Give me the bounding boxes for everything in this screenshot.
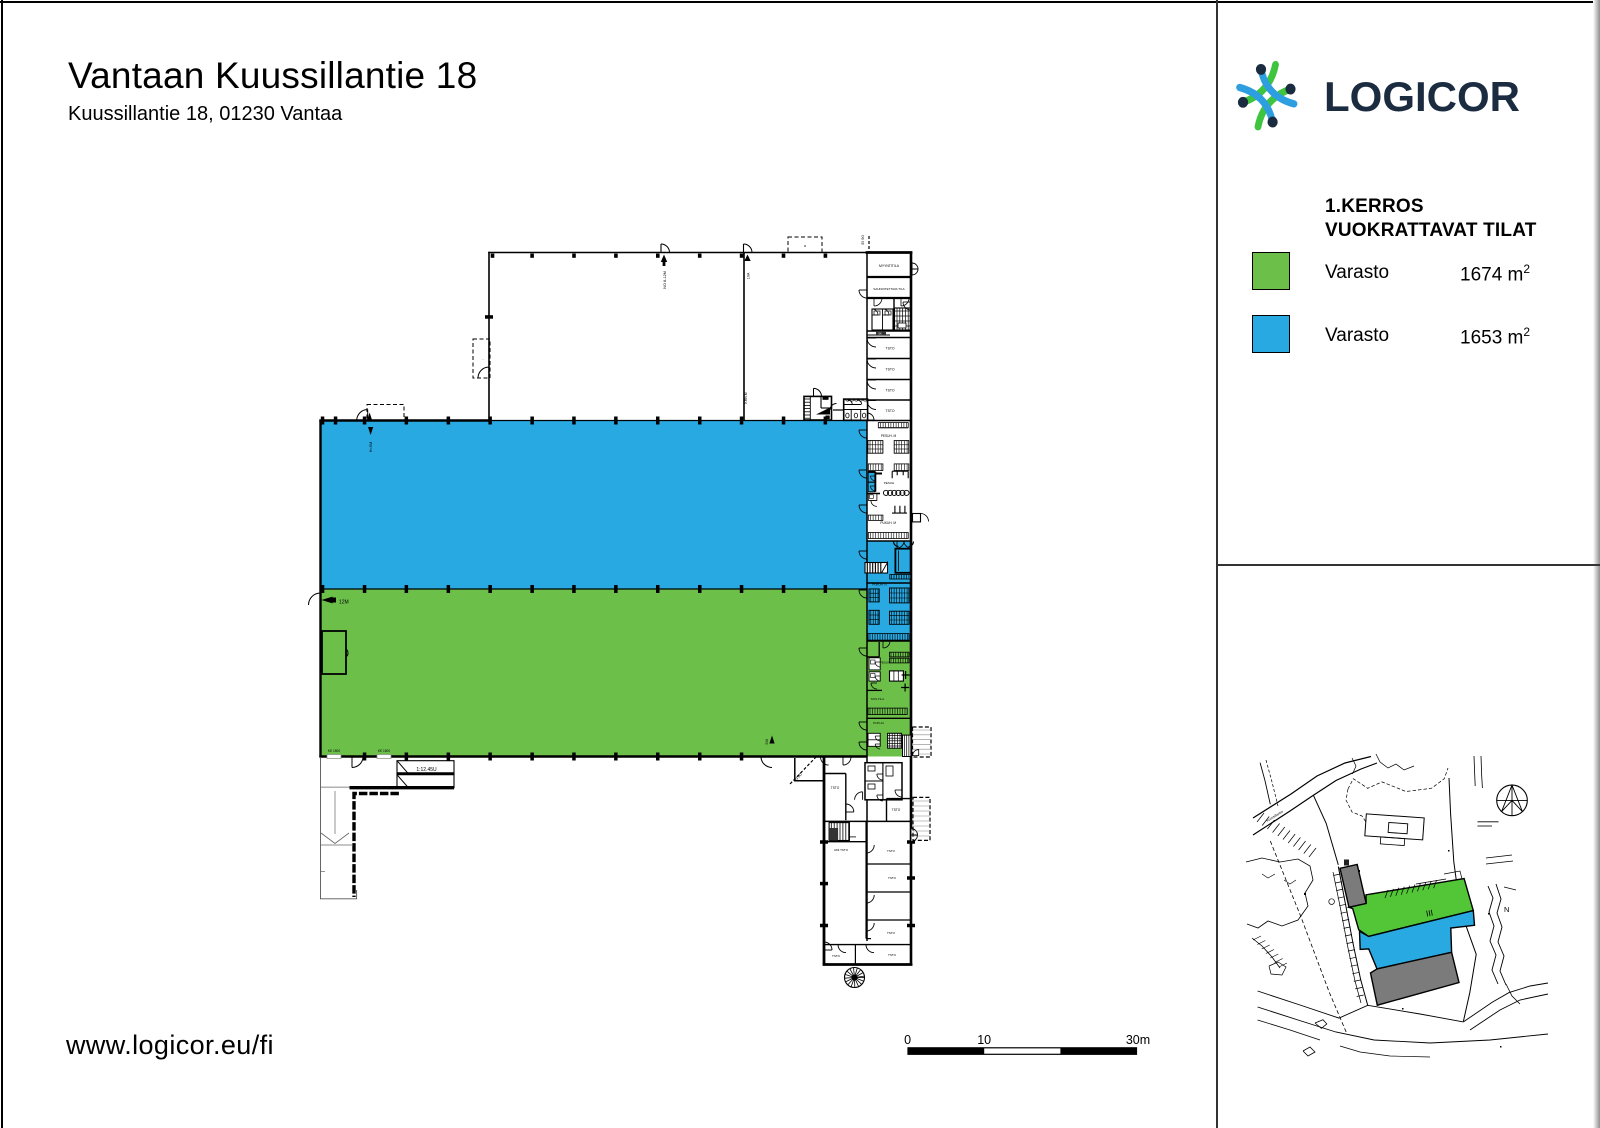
svg-text:30m: 30m: [1126, 1033, 1150, 1047]
svg-text:PESUH: PESUH: [880, 661, 890, 665]
svg-text:2M: 2M: [764, 739, 769, 745]
svg-text:KRN.M: KRN.M: [744, 392, 748, 403]
svg-text:...: ...: [482, 357, 485, 361]
svg-text:N: N: [1504, 905, 1509, 914]
svg-text:TSTO: TSTO: [886, 388, 895, 392]
svg-text:TSTO: TSTO: [832, 954, 841, 958]
svg-text:TSTO: TSTO: [888, 953, 897, 957]
svg-text:TSTO: TSTO: [831, 786, 840, 790]
svg-text:TSTO: TSTO: [886, 368, 895, 372]
svg-text:NO 8-12M: NO 8-12M: [663, 271, 667, 289]
svg-text:MYYNTITILA: MYYNTITILA: [879, 264, 900, 268]
svg-text:SAUNOITETTAVA TILA: SAUNOITETTAVA TILA: [873, 287, 904, 291]
svg-text:10: 10: [977, 1033, 991, 1047]
svg-text:10A: 10A: [747, 272, 751, 279]
svg-text:PUKUH. N: PUKUH. N: [872, 583, 886, 587]
svg-text:PUKUH: PUKUH: [873, 721, 884, 725]
svg-text:KE 1500: KE 1500: [328, 749, 340, 753]
svg-text:AMI TSTO: AMI TSTO: [834, 848, 849, 852]
svg-text:1:12.45U: 1:12.45U: [416, 767, 437, 773]
svg-text:TSTO: TSTO: [888, 876, 897, 880]
svg-text:SK: SK: [878, 332, 882, 336]
svg-text:H=5M: H=5M: [368, 442, 373, 453]
svg-text:SOS.TILA: SOS.TILA: [871, 697, 885, 701]
svg-text:0: 0: [904, 1033, 911, 1047]
svg-text:KE 1500: KE 1500: [378, 749, 390, 753]
svg-text:EI 90: EI 90: [860, 235, 865, 245]
svg-text:PESUH: PESUH: [884, 481, 894, 485]
svg-text:TSTO: TSTO: [887, 849, 896, 853]
svg-text:TSTO: TSTO: [892, 808, 901, 812]
svg-text:TSTO: TSTO: [886, 409, 895, 413]
svg-text:12M: 12M: [339, 600, 349, 606]
svg-text:o: o: [804, 243, 807, 248]
svg-text:TSTO: TSTO: [887, 931, 896, 935]
svg-text:PESUH. M: PESUH. M: [881, 434, 897, 438]
svg-text:TSTO: TSTO: [886, 347, 895, 351]
svg-text:PUKUH. M: PUKUH. M: [880, 521, 896, 525]
